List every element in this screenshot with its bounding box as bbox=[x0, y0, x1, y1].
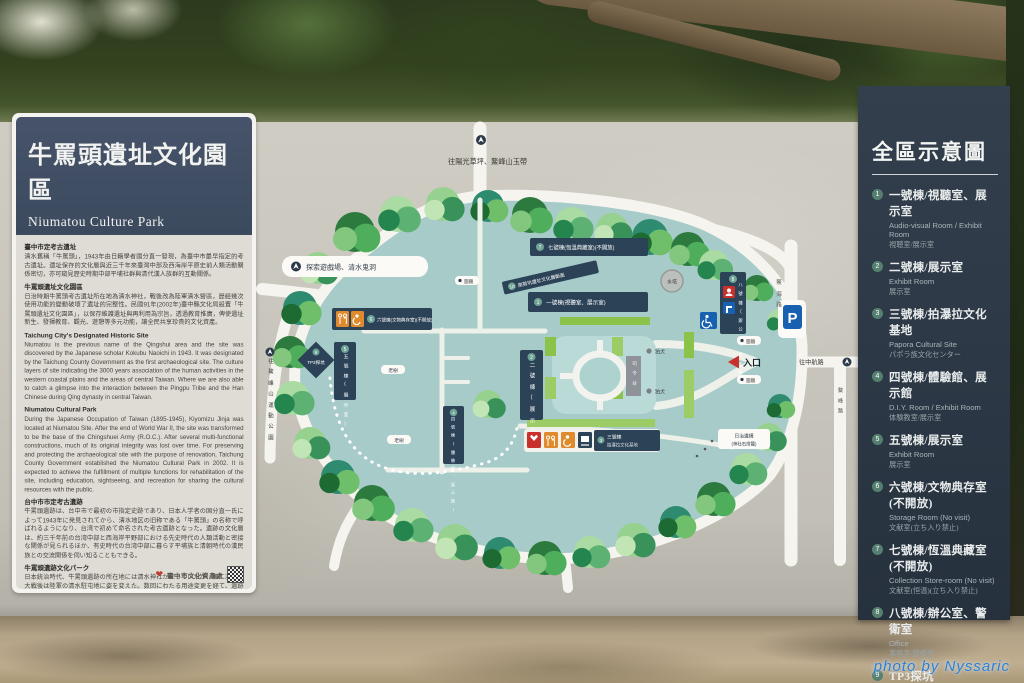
legend-ja: 事務室/警備室 bbox=[889, 649, 998, 659]
legend-zh: 四號棟/體驗館、展示館 bbox=[889, 369, 998, 401]
park-title-en: Niumatou Culture Park bbox=[28, 214, 240, 230]
legend-number: 3 bbox=[872, 308, 883, 319]
qr-code bbox=[227, 566, 244, 583]
section-ja-site: 台中市市定考古遺跡 牛罵頭遺跡は、台中市で最初の市指定史跡であり、日本人学者の国… bbox=[24, 497, 243, 560]
section-title: 牛罵頭遺址文化園區 bbox=[24, 282, 243, 291]
legend-ja: 文献室(恒温)(立ち入り禁止) bbox=[889, 586, 998, 596]
info-panel-body: 臺中市定考古遺址 清水舊稱「牛罵頭」，1943年由日籍學者國分直一發現，為臺中市… bbox=[16, 235, 252, 589]
photo-watermark: photo by Nyssaric bbox=[874, 658, 1010, 675]
legend-en: Exhibit Room bbox=[889, 277, 963, 286]
section-body: Niumatou is the previous name of the Qin… bbox=[24, 341, 243, 402]
legend-en: Collection Store-room (No visit) bbox=[889, 576, 998, 585]
section-en-park: Niumatou Cultural Park During the Japane… bbox=[24, 405, 243, 494]
section-body: 牛罵頭遺跡は、台中市で最初の市指定史跡であり、日本人学者の国分直一氏によって19… bbox=[24, 508, 243, 561]
legend-en: Audio-visual Room / Exhibit Room bbox=[889, 221, 998, 239]
lawn-strip bbox=[684, 370, 694, 418]
svg-text:2: 2 bbox=[530, 355, 533, 361]
legend-en: Storage Room (No visit) bbox=[889, 513, 998, 522]
parking-letter: P bbox=[787, 310, 797, 327]
svg-text:5: 5 bbox=[344, 347, 347, 353]
legend-number: 5 bbox=[872, 434, 883, 445]
agency-name: 臺中市文化資產處 bbox=[167, 570, 223, 580]
agency-footer: ❤ 臺中市文化資產處 bbox=[155, 566, 244, 583]
legend-item-3: 3 三號棟/拍瀑拉文化基地 Papora Cultural Site パポラ族文… bbox=[872, 306, 998, 360]
guardian-dog-label: 狛犬 bbox=[655, 349, 665, 356]
building-3-label: 三號棟 bbox=[607, 434, 622, 441]
legend-ja: 体験教室/展示室 bbox=[889, 413, 998, 423]
section-title: Taichung City's Designated Historic Site bbox=[24, 331, 243, 340]
legend-title: 全區示意圖 bbox=[872, 136, 998, 166]
entrance-label: 入口 bbox=[742, 358, 761, 368]
legend-en: Office bbox=[889, 639, 998, 648]
old-tree-label: 老樹 bbox=[388, 367, 398, 374]
wall-label: 圍牆 bbox=[746, 338, 756, 345]
lawn-strip bbox=[560, 317, 650, 325]
wall-label: 圍牆 bbox=[464, 278, 474, 285]
legend-ja: パポラ族文化センター bbox=[889, 350, 998, 360]
svg-text:6: 6 bbox=[370, 317, 373, 323]
road-label-top: 往陽光草坪、鰲峰山玉帶 bbox=[448, 157, 527, 166]
guardian-dog-label: 狛犬 bbox=[655, 389, 665, 396]
legend-number: 7 bbox=[872, 544, 883, 555]
building-6-label: 六號棟(文物典存室)(不開放) bbox=[377, 316, 433, 323]
info-panel-header: 牛罵頭遺址文化園區 Niumatou Culture Park 牛罵頭遺跡文化パ… bbox=[16, 117, 252, 235]
svg-text:8: 8 bbox=[732, 277, 735, 283]
legend-ja: 文献室(立ち入り禁止) bbox=[889, 523, 998, 533]
heritage-line2: (神社石燈籠) bbox=[732, 441, 757, 448]
section-title: Niumatou Cultural Park bbox=[24, 405, 243, 414]
wheelchair-access-icon bbox=[700, 312, 717, 329]
legend-item-8: 8 八號棟/辦公室、警衛室 Office 事務室/警備室 bbox=[872, 605, 998, 659]
restroom-icon bbox=[544, 432, 558, 448]
section-title: 台中市市定考古遺跡 bbox=[24, 497, 243, 506]
road-label-aohai: 鰲海路 bbox=[775, 278, 782, 309]
legend-ja: 展示室 bbox=[889, 287, 963, 297]
photo-of-park-sign: { "colors": { "panel_navy": "#3c4a5e", "… bbox=[0, 0, 1024, 683]
building-7-label: 七號棟(恆溫典藏室)(不開放) bbox=[548, 243, 615, 251]
restroom-icon bbox=[336, 311, 349, 327]
legend-ja: 展示室 bbox=[889, 460, 963, 470]
legend-item-7: 7 七號棟/恆溫典藏室(不開放) Collection Store-room (… bbox=[872, 542, 998, 596]
section-title: 臺中市定考古遺址 bbox=[24, 242, 243, 251]
gravel-ground bbox=[0, 616, 1024, 683]
legend-ja: 視聴室/展示室 bbox=[889, 240, 998, 250]
legend-zh: 五號棟/展示室 bbox=[889, 432, 963, 448]
svg-text:7: 7 bbox=[539, 245, 542, 251]
legend-number: 1 bbox=[872, 189, 883, 200]
legend-zh: 三號棟/拍瀑拉文化基地 bbox=[889, 306, 998, 338]
heritage-line1: 日治遺構 bbox=[734, 433, 753, 440]
road-label-zhonghang: 往中航路 bbox=[799, 359, 825, 367]
info-panel: 牛罵頭遺址文化園區 Niumatou Culture Park 牛罵頭遺跡文化パ… bbox=[12, 113, 256, 593]
command-stage-label: 司令台 bbox=[631, 361, 636, 387]
park-title-zh: 牛罵頭遺址文化園區 bbox=[28, 135, 240, 205]
legend-item-4: 4 四號棟/體驗館、展示館 D.I.Y. Room / Exhibit Room… bbox=[872, 369, 998, 423]
legend-number: 2 bbox=[872, 261, 883, 272]
legend-item-6: 6 六號棟/文物典存室(不開放) Storage Room (No visit)… bbox=[872, 479, 998, 533]
legend-item-5: 5 五號棟/展示室 Exhibit Room 展示室 bbox=[872, 432, 998, 470]
test-pit-3-label: TP3探坑 bbox=[307, 359, 325, 366]
legend-zh: 二號棟/展示室 bbox=[889, 259, 963, 275]
legend-item-1: 1 一號棟/視聽室、展示室 Audio-visual Room / Exhibi… bbox=[872, 187, 998, 250]
section-body: During the Japanese Occupation of Taiwan… bbox=[24, 415, 243, 494]
svg-text:1: 1 bbox=[537, 300, 540, 306]
legend-en: D.I.Y. Room / Exhibit Room bbox=[889, 403, 998, 412]
legend-number: 8 bbox=[872, 607, 883, 618]
section-en-site: Taichung City's Designated Historic Site… bbox=[24, 331, 243, 402]
road-label-west: 探索遊戲場、清水鬼洞 bbox=[306, 263, 376, 272]
water-tower-label: 水塔 bbox=[667, 279, 677, 286]
section-body: 清水舊稱「牛罵頭」，1943年由日籍學者國分直一發現，為臺中市最早指定的考古遺址… bbox=[24, 253, 243, 279]
legend-zh: 七號棟/恆溫典藏室(不開放) bbox=[889, 542, 998, 574]
legend-en: Papora Cultural Site bbox=[889, 340, 998, 349]
legend-zh: 八號棟/辦公室、警衛室 bbox=[889, 605, 998, 637]
building-1-label: 一號棟(視聽室、展示室) bbox=[546, 298, 606, 306]
agency-logo-icon: ❤ bbox=[155, 570, 163, 579]
divider bbox=[872, 174, 998, 175]
legend-zh: 一號棟/視聽室、展示室 bbox=[889, 187, 998, 219]
legend-number: 6 bbox=[872, 481, 883, 492]
legend-en: Exhibit Room bbox=[889, 450, 963, 459]
lawn-strip bbox=[527, 419, 655, 427]
legend-item-2: 2 二號棟/展示室 Exhibit Room 展示室 bbox=[872, 259, 998, 297]
section-body: 日治時期牛罵頭考古遺址所在地為清水神社，戰後改為陸軍清水營區，歷經幾次使用功能的… bbox=[24, 292, 243, 327]
legend-panel: 全區示意圖 1 一號棟/視聽室、展示室 Audio-visual Room / … bbox=[858, 86, 1010, 620]
svg-text:4: 4 bbox=[452, 411, 455, 416]
parking-sign: P bbox=[778, 300, 806, 338]
building-3-label2: 拍瀑拉文化基地 bbox=[607, 442, 638, 449]
legend-zh: 六號棟/文物典存室(不開放) bbox=[889, 479, 998, 511]
section-zh-site: 臺中市定考古遺址 清水舊稱「牛罵頭」，1943年由日籍學者國分直一發現，為臺中市… bbox=[24, 242, 243, 278]
wall-label: 圍牆 bbox=[746, 377, 756, 384]
park-map: 7 七號棟(恆溫典藏室)(不開放) 10 南勢坑遺址文化層斷面 1 一號棟(視聽… bbox=[250, 115, 862, 593]
lawn-strip bbox=[684, 332, 694, 358]
legend-number: 4 bbox=[872, 371, 883, 382]
road-label-aofeng: 鰲峰路 bbox=[837, 386, 843, 415]
section-zh-park: 牛罵頭遺址文化園區 日治時期牛罵頭考古遺址所在地為清水神社，戰後改為陸軍清水營區… bbox=[24, 282, 243, 327]
old-tree-label: 老樹 bbox=[394, 437, 404, 444]
